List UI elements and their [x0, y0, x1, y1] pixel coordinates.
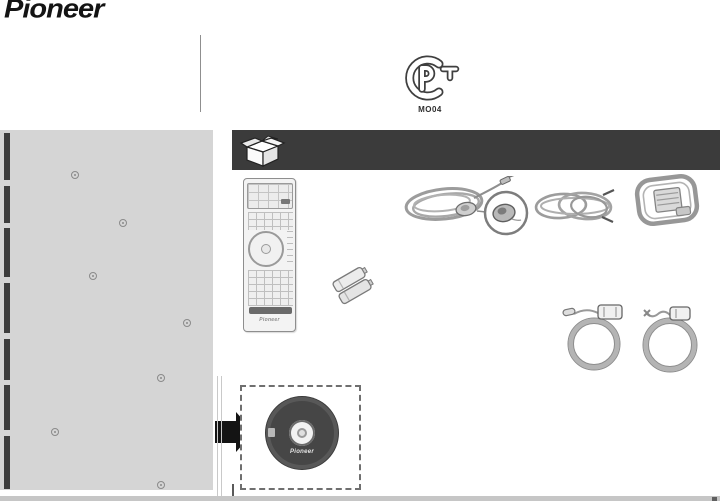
- scan-edge-mark: [712, 497, 717, 501]
- reference-mark-icon: [183, 319, 191, 327]
- antenna-wire-illustration: [533, 184, 621, 228]
- reference-mark-icon: [71, 171, 79, 179]
- remote-side-keys: [287, 231, 293, 267]
- remote-dpad-center: [261, 244, 271, 254]
- scan-edge-strip: [0, 496, 720, 501]
- scan-artifact-line: [221, 376, 222, 501]
- power-cords-illustration: [562, 300, 720, 374]
- reference-mark-icon: [89, 272, 97, 280]
- disc-brand-label: Pioneer: [270, 449, 334, 455]
- am-loop-antenna-illustration: [631, 171, 705, 233]
- margin-bar-segment: [4, 186, 10, 223]
- accessories-section-header: [232, 130, 720, 170]
- power-cord-left: [563, 305, 622, 370]
- reference-mark-icon: [157, 481, 165, 489]
- control-cable-with-remote-sensor-illustration: [402, 176, 532, 240]
- reference-mark-icon: [157, 374, 165, 382]
- scan-artifact-line: [217, 376, 218, 501]
- margin-bar-segment: [4, 228, 10, 277]
- reference-mark-icon: [51, 428, 59, 436]
- remote-control-illustration: Pioneer: [243, 178, 296, 332]
- disc-hole: [297, 428, 307, 438]
- remote-button-grid: [248, 270, 293, 306]
- margin-bar-segment: [4, 339, 10, 380]
- blurred-text-panel: [0, 130, 213, 490]
- gost-r-certification-icon: [401, 54, 461, 104]
- certification-code: MO04: [399, 105, 461, 114]
- remote-dark-key-row: [249, 307, 292, 314]
- margin-bar-segment: [4, 436, 10, 489]
- disc-hub: [289, 420, 315, 446]
- disc-glint: [268, 428, 275, 437]
- remote-brand-label: Pioneer: [244, 317, 295, 323]
- pioneer-logo: Pioneer: [4, 0, 164, 26]
- open-box-icon: [238, 133, 286, 169]
- aa-batteries-illustration: [326, 262, 382, 308]
- cd-rom-dashed-box: Pioneer: [240, 385, 361, 490]
- power-cord-right: [643, 307, 697, 372]
- remote-button-grid: [248, 212, 293, 230]
- margin-bar-segment: [4, 133, 10, 180]
- scanned-manual-page: Pioneer MO04: [0, 0, 720, 501]
- reference-mark-icon: [119, 219, 127, 227]
- margin-bar-segment: [4, 283, 10, 333]
- vertical-divider: [200, 35, 201, 112]
- remote-top-dark-key: [281, 199, 290, 204]
- remote-top-buttons: [247, 183, 293, 209]
- margin-bar-segment: [4, 385, 10, 430]
- remote-dpad: [248, 231, 284, 267]
- cd-rom-disc: Pioneer: [266, 397, 338, 469]
